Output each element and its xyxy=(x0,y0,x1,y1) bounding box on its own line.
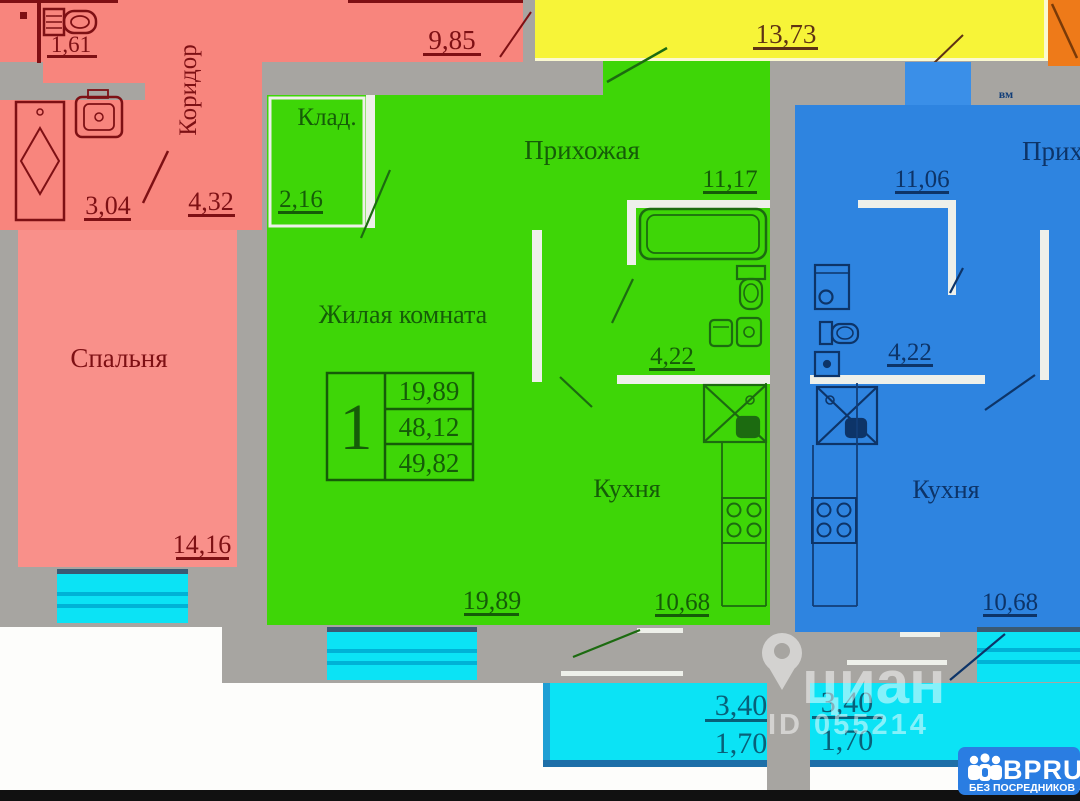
green-living-area: 19,89 xyxy=(463,586,522,615)
blue-hall-area: 11,06 xyxy=(894,166,949,193)
dim-underline xyxy=(895,191,949,194)
bpru-brand: BPRU xyxy=(1003,755,1080,785)
stamp-rooms: 1 xyxy=(340,391,373,464)
green-kitchen-label: Кухня xyxy=(593,474,660,503)
people-icon xyxy=(968,753,1002,781)
dim-underline xyxy=(703,191,757,194)
dim-underline xyxy=(649,368,695,371)
stamp-usable-area: 48,12 xyxy=(399,412,460,442)
area-yellow: 13,73 xyxy=(535,0,1048,64)
pink-wc-area: 1,61 xyxy=(51,32,91,57)
pink-corridor-label: Коридор xyxy=(175,44,202,136)
balcony-left: 3,40 1,70 xyxy=(543,683,776,767)
green-hall-label: Прихожая xyxy=(524,135,640,165)
green-storage-area: 2,16 xyxy=(279,186,323,213)
pink-bedroom-area: 14,16 xyxy=(173,530,232,559)
dim-underline xyxy=(176,557,229,560)
dim-underline xyxy=(753,47,818,50)
yellow-area: 13,73 xyxy=(756,19,817,49)
green-hall-area: 11,17 xyxy=(702,166,757,193)
pink-bath-area: 3,04 xyxy=(85,191,131,220)
pink-hall-area: 4,32 xyxy=(188,187,234,216)
apartment-blue: вм Прихожая 11,06 4,22 Кухня 10,68 xyxy=(795,62,1080,632)
bpru-logo: BPRU БЕЗ ПОСРЕДНИКОВ xyxy=(958,747,1080,795)
floor-plan-image: 1,61 Коридор 9,85 3,04 4,32 Спальня 14,1… xyxy=(0,0,1080,801)
dim-underline xyxy=(887,364,933,367)
blue-kitchen-area: 10,68 xyxy=(982,589,1038,616)
blue-kitchen-label: Кухня xyxy=(912,475,979,504)
stamp-total-area: 49,82 xyxy=(399,448,460,478)
blue-vent-label: вм xyxy=(999,87,1013,101)
dim-underline xyxy=(84,218,131,221)
apartment-green: Клад. 2,16 Прихожая 11,17 Жилая комната … xyxy=(267,48,770,625)
dim-underline xyxy=(983,614,1037,617)
dim-underline xyxy=(188,214,235,217)
blue-bath-area: 4,22 xyxy=(888,339,932,366)
floor-plan: 1,61 Коридор 9,85 3,04 4,32 Спальня 14,1… xyxy=(0,0,1080,801)
dim-underline xyxy=(464,613,519,616)
green-bath-area: 4,22 xyxy=(650,343,694,370)
pink-bedroom-label: Спальня xyxy=(70,343,167,373)
fraction-line xyxy=(705,719,776,722)
stamp-living-area: 19,89 xyxy=(399,376,460,406)
watermark-id: ID 055214 xyxy=(768,709,929,741)
bpru-tagline: БЕЗ ПОСРЕДНИКОВ xyxy=(969,782,1076,794)
green-kitchen-area: 10,68 xyxy=(654,589,710,616)
green-storage-label: Клад. xyxy=(297,104,356,131)
green-living-label: Жилая комната xyxy=(319,300,488,329)
balcony-left-area-top: 3,40 xyxy=(715,689,768,722)
dim-underline xyxy=(278,211,323,214)
blue-hall-label: Прихожая xyxy=(1022,136,1080,166)
bottom-bar xyxy=(0,790,1080,801)
pink-room-area: 9,85 xyxy=(428,25,475,55)
dim-underline xyxy=(47,55,97,58)
area-orange xyxy=(1048,0,1080,66)
balcony-left-area-bottom: 1,70 xyxy=(715,727,768,760)
watermark-brand: циан xyxy=(802,649,945,716)
dim-underline xyxy=(655,614,709,617)
dim-underline xyxy=(423,53,481,56)
